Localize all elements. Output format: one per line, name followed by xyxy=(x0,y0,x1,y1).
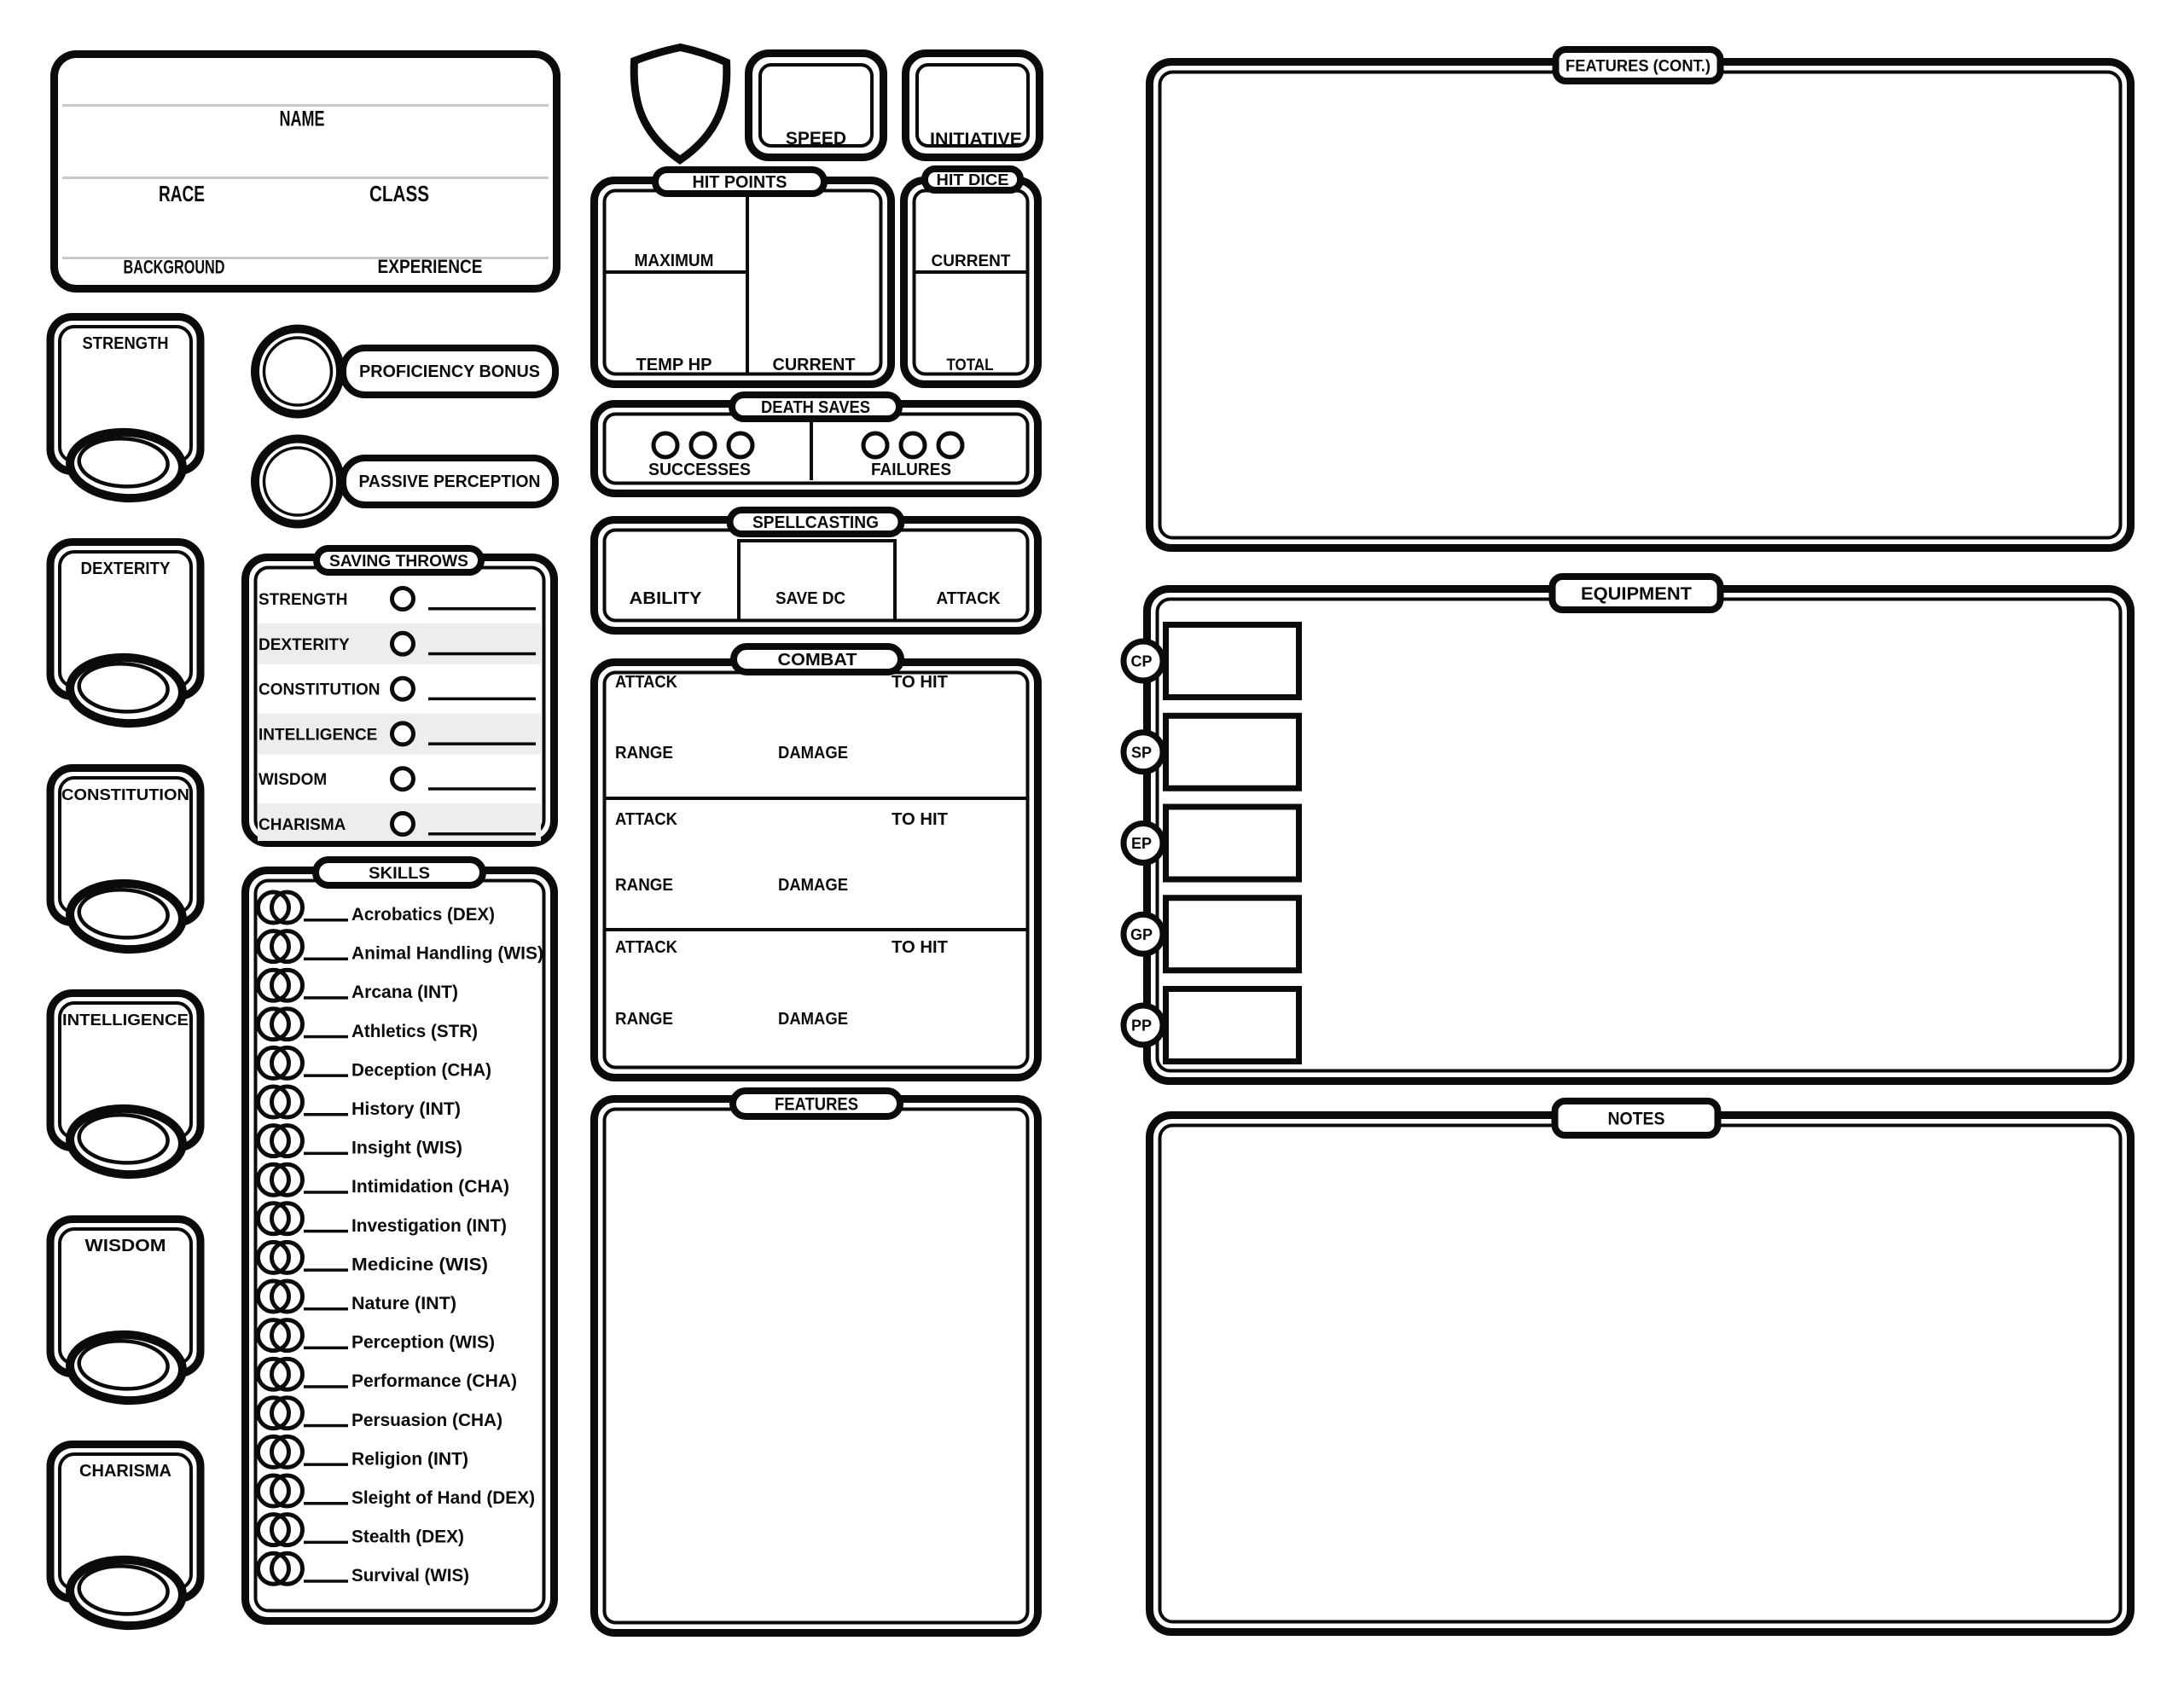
svg-text:DEXTERITY: DEXTERITY xyxy=(258,636,350,654)
svg-text:RANGE: RANGE xyxy=(615,876,673,895)
svg-text:INITIATIVE: INITIATIVE xyxy=(930,130,1022,149)
svg-text:Acrobatics (DEX): Acrobatics (DEX) xyxy=(351,905,495,925)
svg-text:TO HIT: TO HIT xyxy=(892,673,948,692)
svg-text:CURRENT: CURRENT xyxy=(932,252,1011,270)
svg-text:ABILITY: ABILITY xyxy=(630,589,703,608)
svg-text:Insight (WIS): Insight (WIS) xyxy=(351,1139,462,1158)
svg-text:WISDOM: WISDOM xyxy=(258,771,327,789)
svg-text:Animal Handling (WIS): Animal Handling (WIS) xyxy=(351,944,543,964)
svg-text:SPEED: SPEED xyxy=(786,129,846,148)
svg-text:FEATURES: FEATURES xyxy=(775,1095,858,1115)
svg-text:RACE: RACE xyxy=(159,181,205,206)
svg-text:RANGE: RANGE xyxy=(615,744,673,762)
svg-text:Arcana (INT): Arcana (INT) xyxy=(351,983,458,1002)
svg-text:SAVE DC: SAVE DC xyxy=(775,589,845,608)
svg-text:EQUIPMENT: EQUIPMENT xyxy=(1581,584,1692,604)
svg-text:NAME: NAME xyxy=(280,107,325,131)
svg-text:Survival (WIS): Survival (WIS) xyxy=(351,1566,469,1586)
svg-text:Religion (INT): Religion (INT) xyxy=(351,1449,468,1469)
svg-text:PROFICIENCY BONUS: PROFICIENCY BONUS xyxy=(359,362,540,381)
svg-text:ATTACK: ATTACK xyxy=(615,673,678,692)
svg-text:PP: PP xyxy=(1131,1017,1152,1035)
svg-text:TO HIT: TO HIT xyxy=(892,938,948,957)
svg-text:Sleight of Hand (DEX): Sleight of Hand (DEX) xyxy=(351,1488,535,1508)
svg-text:WISDOM: WISDOM xyxy=(85,1237,166,1255)
svg-text:CHARISMA: CHARISMA xyxy=(258,816,346,834)
svg-text:ATTACK: ATTACK xyxy=(615,810,678,829)
svg-text:SKILLS: SKILLS xyxy=(369,865,430,883)
svg-text:Athletics (STR): Athletics (STR) xyxy=(351,1022,478,1041)
svg-text:Investigation (INT): Investigation (INT) xyxy=(351,1216,507,1236)
svg-text:CLASS: CLASS xyxy=(369,181,429,206)
svg-text:MAXIMUM: MAXIMUM xyxy=(635,252,714,270)
svg-text:EP: EP xyxy=(1131,835,1152,852)
svg-text:FAILURES: FAILURES xyxy=(871,461,951,479)
svg-text:CONSTITUTION: CONSTITUTION xyxy=(258,681,380,699)
svg-text:History (INT): History (INT) xyxy=(351,1099,461,1119)
svg-text:Persuasion (CHA): Persuasion (CHA) xyxy=(351,1411,502,1430)
svg-text:HIT DICE: HIT DICE xyxy=(937,171,1009,188)
svg-text:FEATURES (CONT.): FEATURES (CONT.) xyxy=(1565,57,1711,75)
svg-text:DEATH SAVES: DEATH SAVES xyxy=(761,398,870,417)
svg-text:NOTES: NOTES xyxy=(1608,1110,1665,1129)
svg-text:Stealth (DEX): Stealth (DEX) xyxy=(351,1528,464,1547)
svg-text:DAMAGE: DAMAGE xyxy=(778,876,848,895)
svg-text:HIT POINTS: HIT POINTS xyxy=(693,173,787,192)
svg-text:Deception (CHA): Deception (CHA) xyxy=(351,1060,491,1080)
svg-text:CHARISMA: CHARISMA xyxy=(79,1462,171,1481)
svg-text:SPELLCASTING: SPELLCASTING xyxy=(752,513,879,532)
svg-text:DAMAGE: DAMAGE xyxy=(778,1010,848,1029)
svg-text:DAMAGE: DAMAGE xyxy=(778,744,848,762)
svg-text:TO HIT: TO HIT xyxy=(892,810,948,829)
svg-text:INTELLIGENCE: INTELLIGENCE xyxy=(62,1012,189,1029)
svg-text:Intimidation (CHA): Intimidation (CHA) xyxy=(351,1177,509,1197)
svg-text:CP: CP xyxy=(1130,653,1152,670)
svg-text:INTELLIGENCE: INTELLIGENCE xyxy=(258,726,377,744)
svg-text:DEXTERITY: DEXTERITY xyxy=(81,559,171,578)
svg-text:CURRENT: CURRENT xyxy=(773,356,856,374)
svg-text:EXPERIENCE: EXPERIENCE xyxy=(378,256,483,277)
svg-text:COMBAT: COMBAT xyxy=(778,651,857,670)
svg-text:Perception (WIS): Perception (WIS) xyxy=(351,1333,495,1353)
svg-text:SP: SP xyxy=(1131,744,1152,761)
svg-text:STRENGTH: STRENGTH xyxy=(258,591,348,609)
svg-text:Medicine (WIS): Medicine (WIS) xyxy=(351,1255,488,1274)
svg-text:CONSTITUTION: CONSTITUTION xyxy=(61,786,189,803)
svg-text:SAVING THROWS: SAVING THROWS xyxy=(329,553,468,571)
svg-text:ATTACK: ATTACK xyxy=(937,589,1002,608)
svg-text:PASSIVE PERCEPTION: PASSIVE PERCEPTION xyxy=(359,472,541,491)
svg-text:GP: GP xyxy=(1130,926,1153,943)
svg-text:RANGE: RANGE xyxy=(615,1010,673,1029)
svg-text:ATTACK: ATTACK xyxy=(615,938,678,957)
svg-text:Nature (INT): Nature (INT) xyxy=(351,1294,456,1313)
svg-text:SUCCESSES: SUCCESSES xyxy=(648,461,751,479)
svg-text:TOTAL: TOTAL xyxy=(947,357,994,374)
svg-text:STRENGTH: STRENGTH xyxy=(83,334,169,353)
svg-text:BACKGROUND: BACKGROUND xyxy=(124,257,225,278)
svg-text:TEMP HP: TEMP HP xyxy=(636,356,712,374)
svg-text:Performance (CHA): Performance (CHA) xyxy=(351,1371,517,1391)
